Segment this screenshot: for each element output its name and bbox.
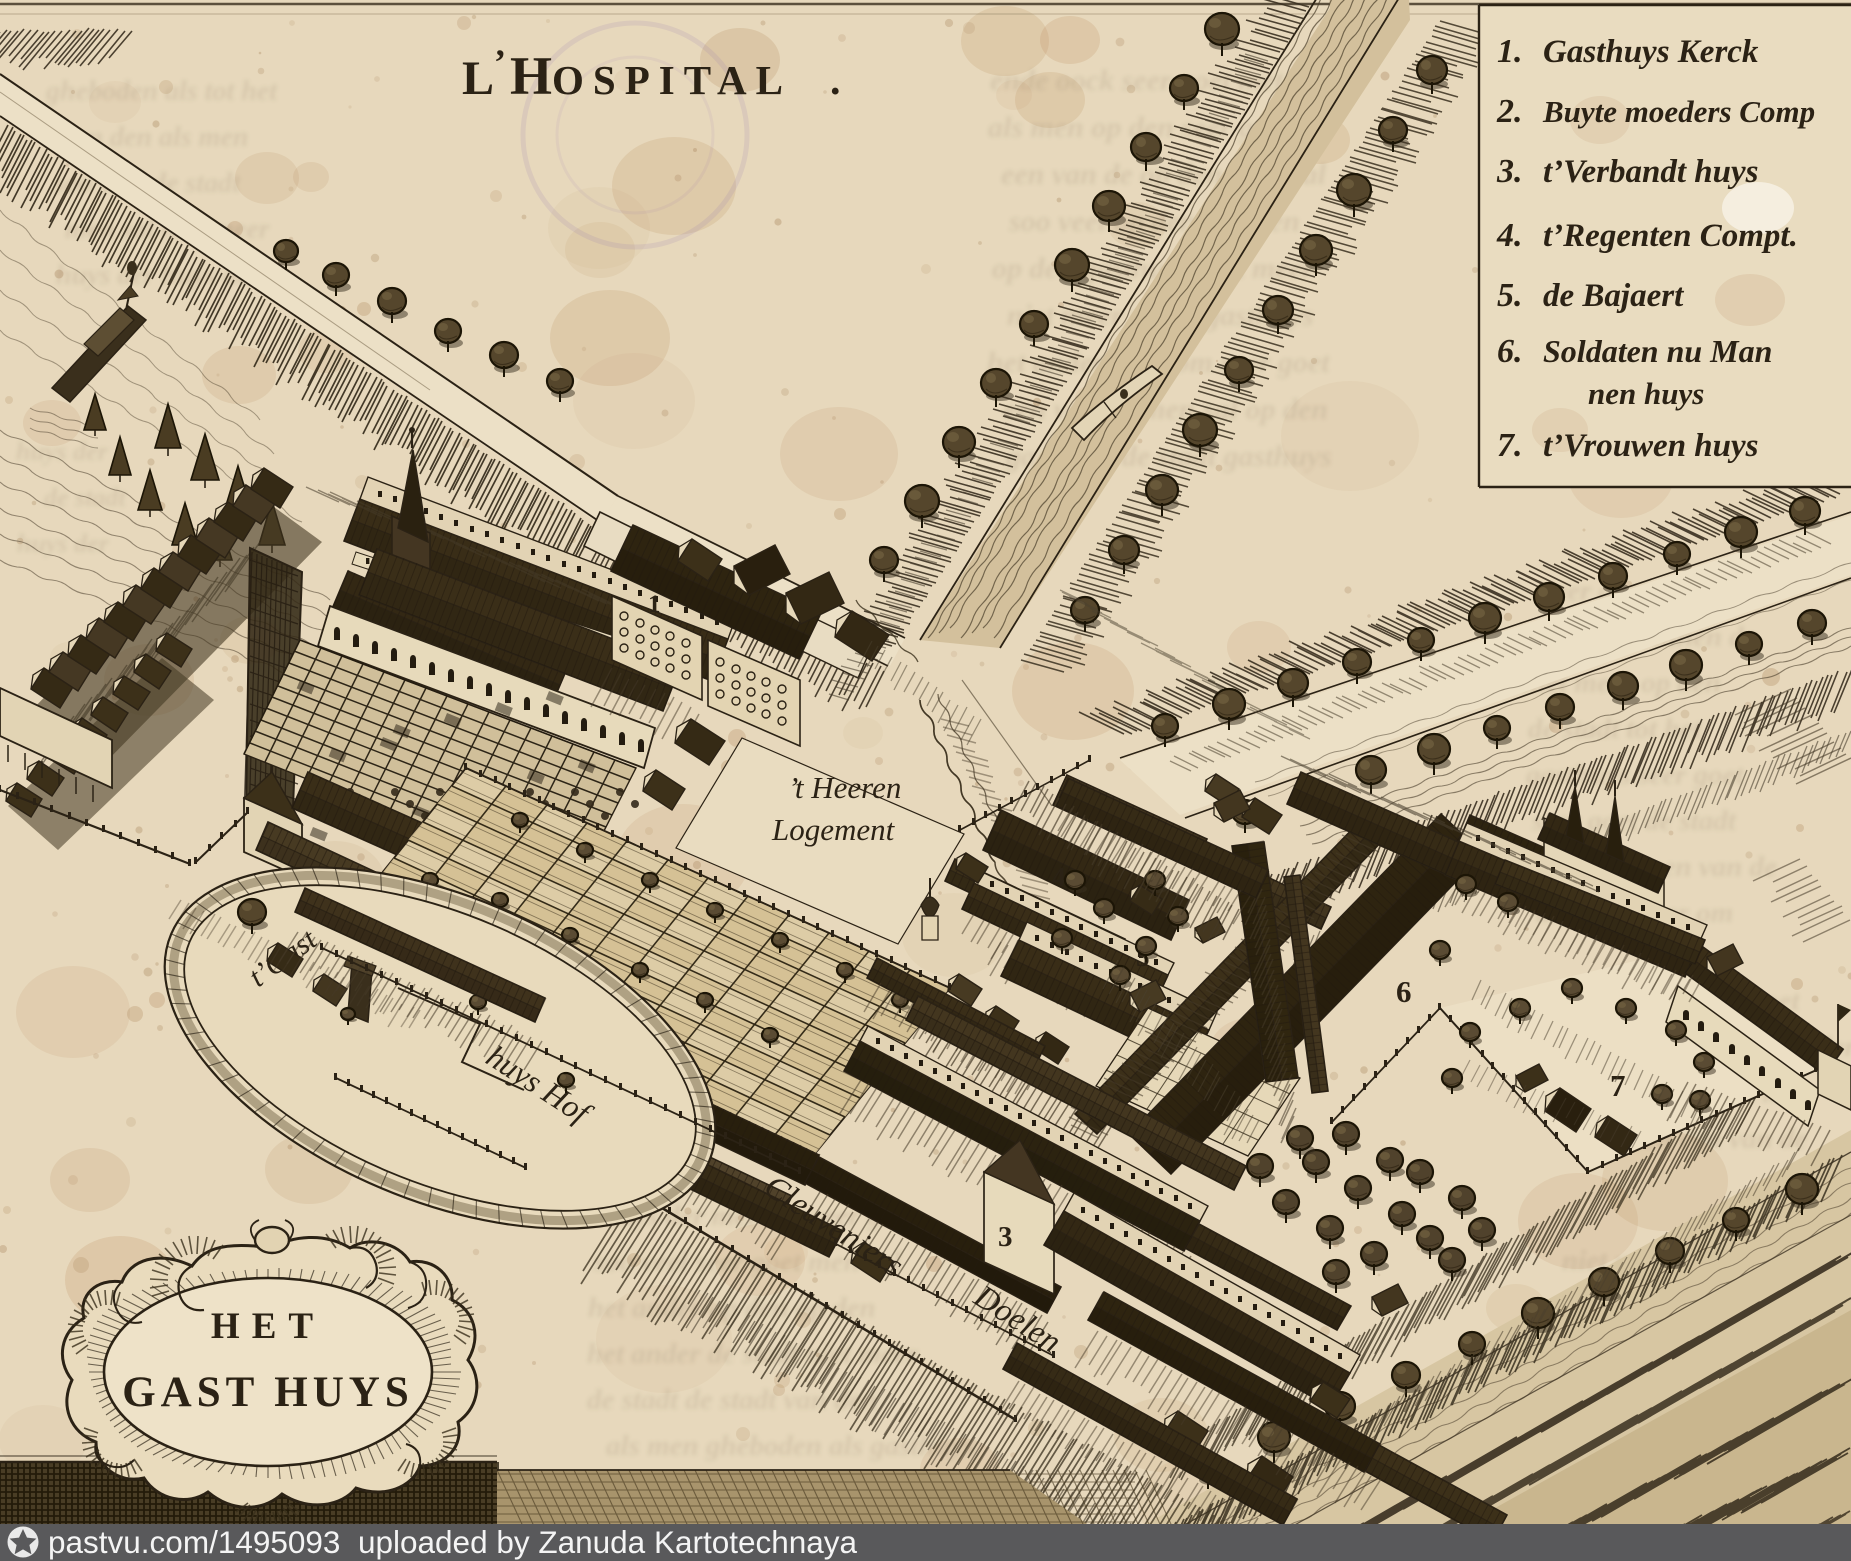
- svg-text:L: L: [462, 52, 498, 105]
- svg-text:.: .: [830, 58, 841, 104]
- svg-text:4.: 4.: [1496, 217, 1523, 254]
- svg-text:4: 4: [1052, 862, 1066, 892]
- svg-text:OSPITAL: OSPITAL: [552, 57, 792, 103]
- svg-text:1.: 1.: [1497, 33, 1523, 70]
- svg-text:5.: 5.: [1497, 277, 1523, 314]
- svg-text:6.: 6.: [1497, 333, 1523, 370]
- svg-text:t’Vrouwen huys: t’Vrouwen huys: [1543, 428, 1759, 464]
- svg-text:de Bajaert: de Bajaert: [1543, 278, 1684, 314]
- svg-text:HET: HET: [211, 1306, 325, 1347]
- svg-text:6: 6: [1396, 974, 1412, 1009]
- svg-text:t’Regenten Compt.: t’Regenten Compt.: [1543, 218, 1798, 254]
- svg-text:Buyte moeders Comp: Buyte moeders Comp: [1542, 94, 1815, 129]
- svg-text:3.: 3.: [1496, 153, 1523, 190]
- svg-text:’: ’: [494, 42, 506, 82]
- svg-text:7.: 7.: [1497, 427, 1523, 464]
- svg-text:GAST HUYS: GAST HUYS: [122, 1369, 414, 1416]
- svg-text:Logement: Logement: [771, 812, 896, 847]
- svg-text:Soldaten nu Man: Soldaten nu Man: [1543, 333, 1772, 369]
- svg-text:3: 3: [998, 1221, 1013, 1253]
- svg-text:nen huys: nen huys: [1588, 376, 1704, 411]
- svg-text:2.: 2.: [1496, 93, 1523, 130]
- svg-text:pastvu.com/1495093 uploaded b: pastvu.com/1495093 uploaded by Zanuda Ka…: [48, 1524, 858, 1560]
- svg-text:’t Heeren: ’t Heeren: [788, 770, 901, 805]
- svg-text:t’Verbandt huys: t’Verbandt huys: [1543, 154, 1758, 190]
- svg-text:Gasthuys Kerck: Gasthuys Kerck: [1543, 34, 1759, 70]
- svg-text:7: 7: [1610, 1068, 1626, 1103]
- svg-text:H: H: [510, 46, 552, 106]
